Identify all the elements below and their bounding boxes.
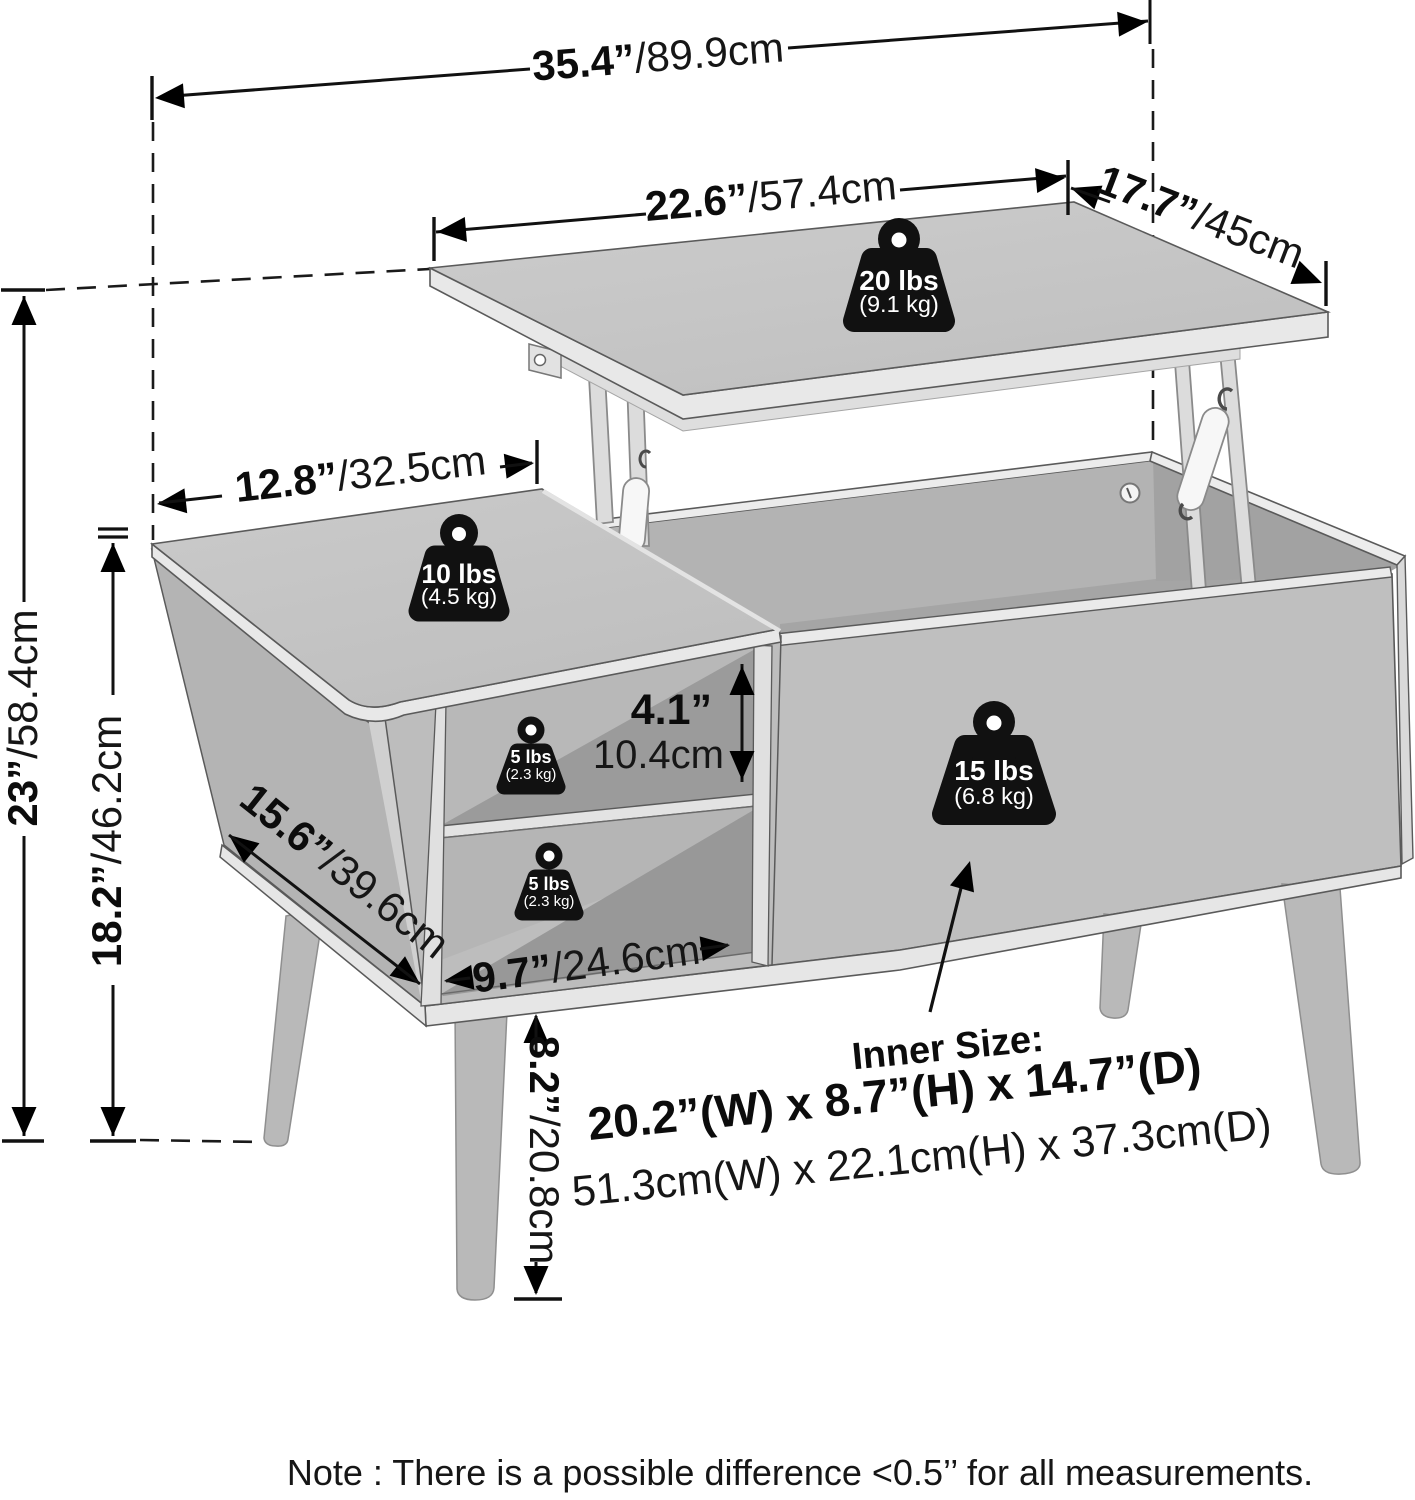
svg-text:(6.8 kg): (6.8 kg) [954,783,1034,809]
svg-text:Note : There is a possible dif: Note : There is a possible difference <0… [287,1452,1313,1493]
svg-text:4.1”: 4.1” [631,686,712,734]
svg-text:23”/58.4cm: 23”/58.4cm [0,609,46,826]
svg-text:5 lbs: 5 lbs [510,747,551,767]
svg-text:5 lbs: 5 lbs [528,874,569,894]
svg-text:15 lbs: 15 lbs [954,755,1033,786]
svg-text:(4.5 kg): (4.5 kg) [421,584,497,609]
svg-text:10.4cm: 10.4cm [593,733,724,777]
svg-text:8.2”/20.8cm: 8.2”/20.8cm [521,1036,568,1265]
svg-text:(2.3 kg): (2.3 kg) [506,766,557,783]
svg-text:(9.1 kg): (9.1 kg) [859,291,939,317]
svg-text:(2.3 kg): (2.3 kg) [524,893,575,910]
svg-text:18.2”/46.2cm: 18.2”/46.2cm [83,715,130,967]
